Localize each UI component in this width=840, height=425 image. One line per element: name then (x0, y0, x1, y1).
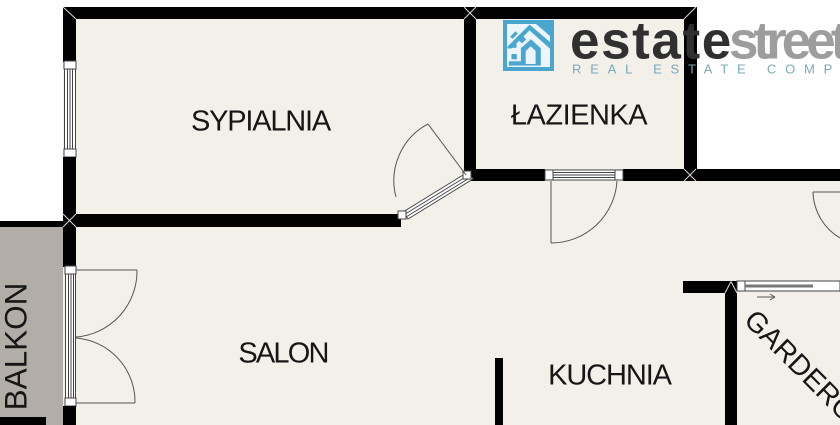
svg-text:ŁAZIENKA: ŁAZIENKA (511, 100, 648, 132)
svg-text:KUCHNIA: KUCHNIA (548, 359, 673, 391)
svg-text:BALKON: BALKON (0, 283, 34, 411)
svg-text:SALON: SALON (238, 338, 327, 370)
svg-text:SYPIALNIA: SYPIALNIA (191, 106, 332, 138)
svg-text:REAL ESTATE COMPANY: REAL ESTATE COMPANY (572, 62, 840, 77)
